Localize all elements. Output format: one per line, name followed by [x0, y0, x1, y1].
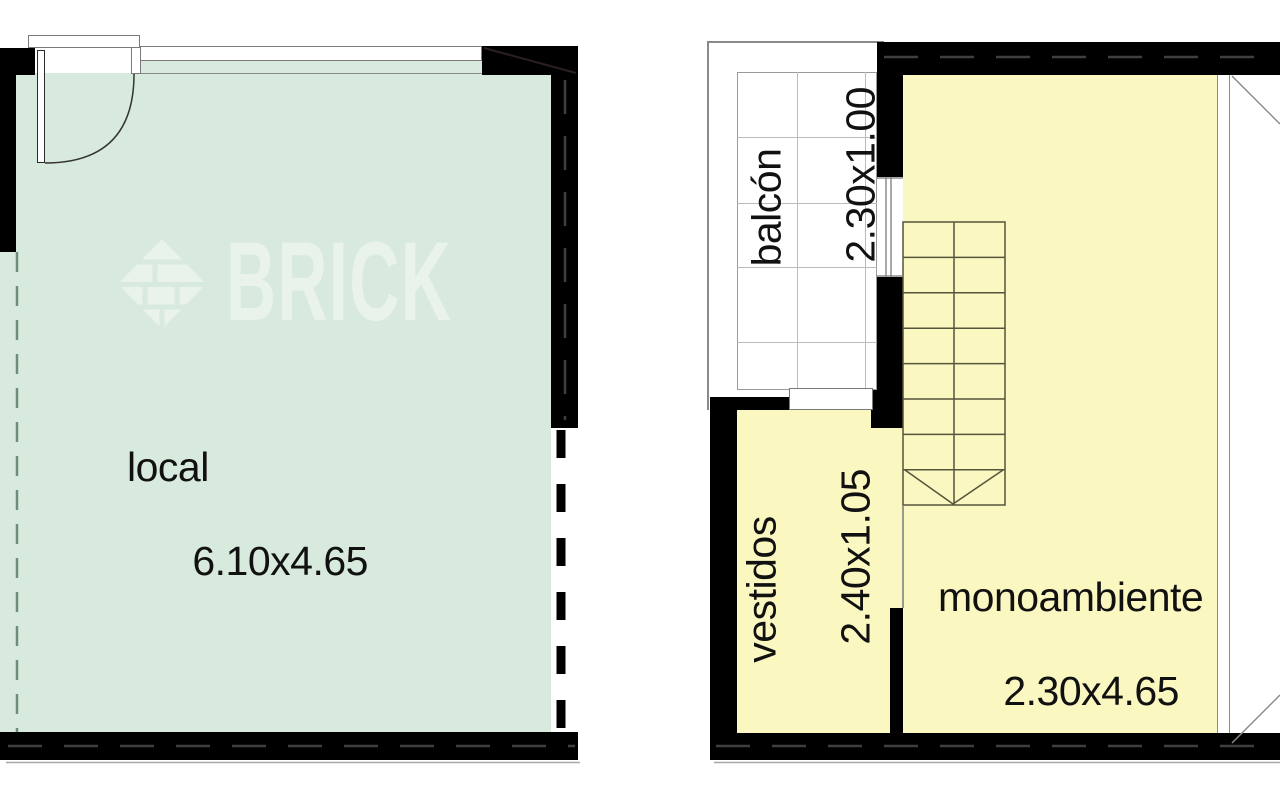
wall-bottom-right-plan [710, 733, 1280, 760]
balcony-door-threshold [789, 388, 873, 410]
wall-vestidos-west [710, 397, 737, 733]
entry-door-opening [35, 46, 140, 73]
facade-glazing-diagonals [1232, 76, 1280, 743]
room-label-monoambiente: monoambiente 2.30x4.65 [938, 574, 1203, 715]
wall-partition-vestidos [890, 608, 903, 733]
facade-line-inner [1217, 75, 1219, 733]
entry-door-frame [28, 35, 140, 48]
wall-left [0, 48, 16, 252]
wall-bottom-left-plan [0, 732, 578, 760]
room-label-vestidos: vestidos 2.40x1.05 [739, 450, 834, 730]
facade-line-outer [1229, 75, 1231, 733]
watermark-brick-logo-icon [117, 238, 207, 330]
entry-door-jamb [131, 47, 141, 74]
room-top-edge-line [131, 73, 482, 75]
room-dimensions-local: 6.10x4.65 [192, 538, 368, 584]
room-dimensions-vestidos: 2.40x1.05 [833, 469, 879, 645]
room-name-local: local [127, 444, 209, 490]
wall-right [551, 75, 578, 428]
room-label-balcon: balcón 2.30x1.00 [744, 78, 839, 338]
wall-top-right-plan [877, 42, 1280, 75]
room-name-balcon: balcón [744, 149, 790, 267]
room-dimensions-monoambiente: 2.30x4.65 [1003, 668, 1179, 714]
room-label-local: local 6.10x4.65 [127, 444, 368, 585]
entry-door-leaf [37, 50, 45, 163]
watermark-brand-text: BRICK [226, 232, 452, 332]
room-name-monoambiente: monoambiente [938, 574, 1203, 620]
floor-plan-canvas: BRICK local 6.10x4.65 [0, 0, 1280, 800]
top-window-band [140, 46, 482, 61]
balcony-outer-edge-left [707, 41, 709, 410]
room-name-vestidos: vestidos [739, 516, 785, 662]
room-local-fill [0, 61, 551, 732]
wall-top-right-corner [482, 46, 578, 75]
room-dimensions-balcon: 2.30x1.00 [838, 87, 884, 263]
balcony-outer-edge-top [707, 41, 884, 43]
balcony-floor-joint [737, 342, 877, 343]
